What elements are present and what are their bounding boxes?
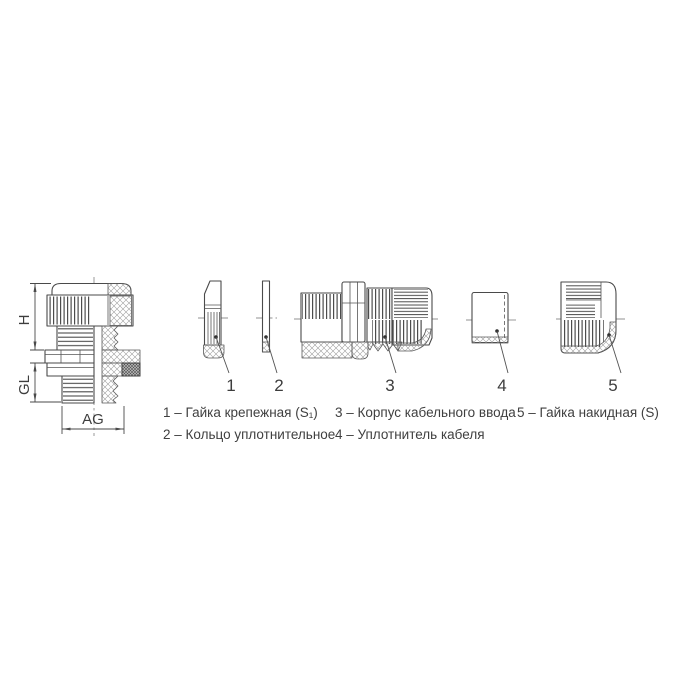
- part-3-thread-lines: [302, 294, 341, 319]
- legend-column-2: 3 – Корпус кабельного ввода 4 – Уплотнит…: [335, 403, 516, 447]
- dimension-ag-label: AG: [82, 411, 104, 428]
- dimension-gl-label: GL: [16, 375, 33, 395]
- leader-line: [266, 337, 277, 373]
- mount-thread-ridges: [63, 377, 93, 402]
- hex-flange-outline: [45, 350, 94, 363]
- arrow-up-icon: [34, 363, 37, 372]
- cap-wall-section-hatch: [110, 296, 132, 326]
- part-1-view: 1: [198, 281, 236, 395]
- part-2-view: 2: [256, 281, 284, 395]
- locknut-section-hatch: [102, 363, 122, 376]
- part-3-hatch-tab: [352, 342, 368, 359]
- callout-1: 1: [226, 376, 235, 395]
- arrow-down-icon: [34, 394, 37, 403]
- legend-item-2: 2 – Кольцо уплотнительное: [163, 425, 335, 447]
- locknut-outline: [47, 363, 94, 376]
- part-3-view: 3: [294, 282, 438, 395]
- dimension-h: H: [16, 284, 51, 351]
- hex-section-hatch: [102, 350, 140, 363]
- assembled-view: H GL AG: [16, 277, 140, 436]
- part-4-view: 4: [466, 293, 516, 396]
- part-3-hex: [342, 282, 365, 342]
- legend-item-5: 5 – Гайка накидная (S): [517, 403, 659, 425]
- callout-5: 5: [608, 376, 617, 395]
- upper-thread-section-hatch: [102, 326, 118, 350]
- part-3-cone-rib-lines: [394, 289, 428, 318]
- callout-3: 3: [385, 376, 394, 395]
- dimension-h-label: H: [16, 315, 33, 326]
- legend-item-3: 3 – Корпус кабельного ввода: [335, 403, 516, 425]
- legend-item-1: 1 – Гайка крепежная (S₁): [163, 403, 335, 425]
- part-5-view: 5: [556, 282, 625, 395]
- part-4-section-hatch: [472, 337, 508, 343]
- seal-ring-section: [122, 363, 140, 376]
- part-4-outline: [472, 293, 508, 343]
- part-3-lower-rib-lines: [372, 320, 422, 344]
- arrow-left-icon: [62, 428, 71, 431]
- part-3-section-hatch: [302, 342, 352, 358]
- part-5-upper-rib-lines: [566, 284, 601, 301]
- upper-thread-ridges: [58, 327, 93, 349]
- part-3-serrated-hatch: [368, 342, 402, 351]
- mount-thread-section-hatch: [102, 376, 118, 403]
- legend-item-4: 4 – Уплотнитель кабеля: [335, 425, 516, 447]
- part-5-lower-rib-lines: [564, 320, 602, 347]
- cable-gland-assembly-diagram: H GL AG 1: [0, 0, 700, 460]
- arrow-right-icon: [116, 428, 125, 431]
- cap-ribs: [50, 297, 92, 325]
- technical-drawing-page: H GL AG 1: [0, 0, 700, 700]
- part-1-outline: [205, 281, 222, 345]
- arrow-up-icon: [34, 284, 37, 293]
- part-5-inner-rib-lines: [566, 305, 595, 318]
- part-2-outline: [263, 281, 270, 352]
- dimension-ag: AG: [62, 406, 124, 434]
- part-3-fin-lines: [368, 289, 391, 319]
- leader-line: [609, 335, 621, 373]
- callout-4: 4: [497, 376, 506, 395]
- arrow-down-icon: [34, 342, 37, 351]
- callout-2: 2: [274, 376, 283, 395]
- cap-dome-section-hatch: [108, 284, 131, 296]
- legend-column-3: 5 – Гайка накидная (S): [517, 403, 659, 425]
- legend-column-1: 1 – Гайка крепежная (S₁) 2 – Кольцо упло…: [163, 403, 335, 447]
